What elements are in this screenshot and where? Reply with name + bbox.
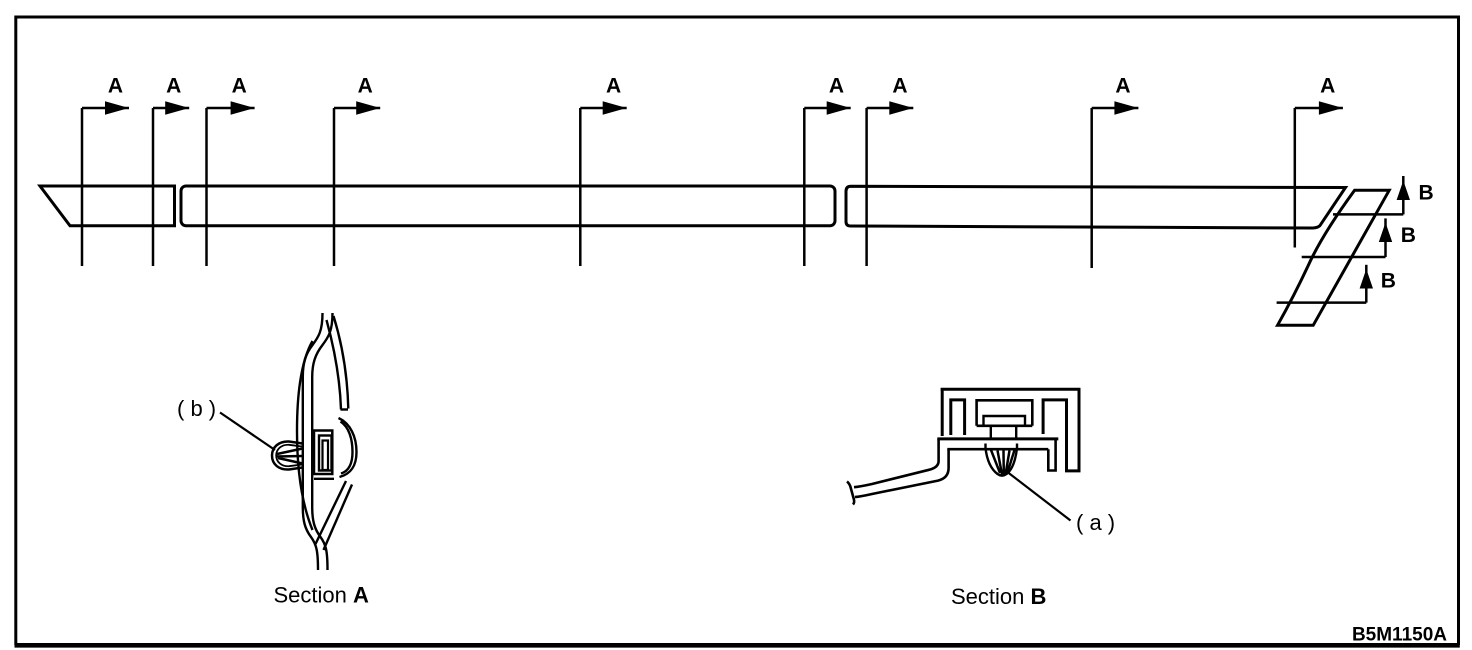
svg-text:B: B (1401, 224, 1416, 247)
svg-text:Section B: Section B (951, 584, 1046, 609)
svg-text:A: A (358, 75, 373, 98)
svg-text:A: A (108, 75, 123, 98)
svg-text:( a ): ( a ) (1076, 510, 1115, 535)
svg-text:B: B (1381, 270, 1396, 293)
svg-text:( b ): ( b ) (177, 396, 216, 421)
svg-text:B5M1150A: B5M1150A (1352, 625, 1447, 646)
svg-text:A: A (829, 75, 844, 98)
svg-text:Section A: Section A (274, 583, 370, 608)
svg-text:A: A (1115, 75, 1130, 98)
svg-text:A: A (606, 75, 621, 98)
svg-text:A: A (166, 75, 181, 98)
svg-text:A: A (892, 75, 907, 98)
svg-text:A: A (1320, 75, 1335, 98)
svg-text:A: A (232, 75, 247, 98)
svg-text:B: B (1419, 182, 1434, 205)
